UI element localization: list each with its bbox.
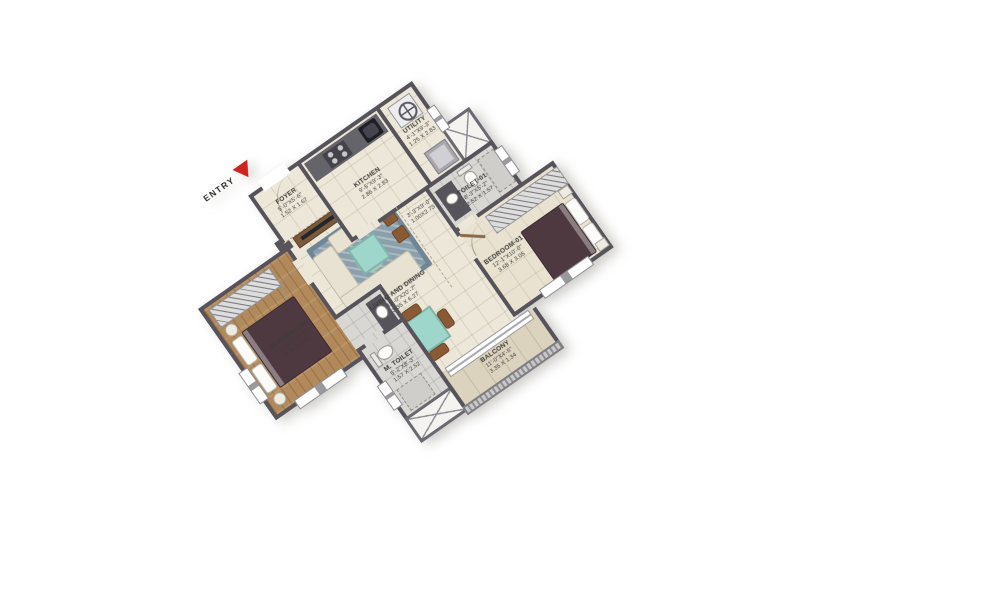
entry-arrow-icon (233, 160, 256, 183)
entry-label: ENTRY (201, 174, 236, 203)
utility-sink-basin (429, 144, 454, 169)
nightstand (271, 390, 289, 408)
floor-plan-canvas: ENTRY (0, 0, 1000, 600)
kitchen-sink-basin (362, 122, 380, 140)
floor-plan: ENTRY (150, 30, 656, 519)
entry-marker: ENTRY (200, 160, 256, 206)
